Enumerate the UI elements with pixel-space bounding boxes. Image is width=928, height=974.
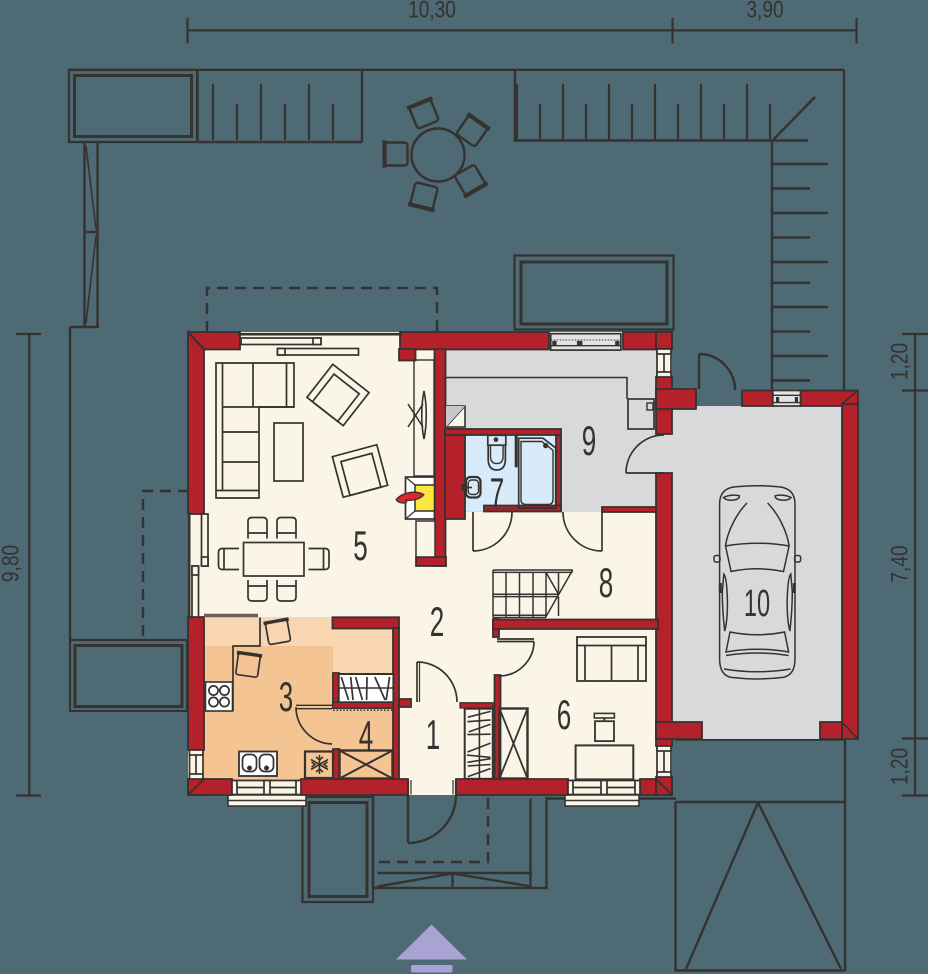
svg-text:2: 2 — [430, 599, 444, 646]
svg-text:5: 5 — [353, 523, 367, 570]
svg-text:4: 4 — [359, 713, 373, 760]
svg-text:8: 8 — [599, 560, 613, 607]
svg-text:7: 7 — [490, 470, 504, 517]
svg-text:9: 9 — [582, 418, 596, 465]
svg-text:1,20: 1,20 — [885, 748, 913, 785]
svg-text:10: 10 — [744, 581, 770, 624]
svg-text:1,20: 1,20 — [885, 343, 913, 380]
svg-text:9,80: 9,80 — [0, 545, 24, 582]
svg-text:10,30: 10,30 — [408, 0, 456, 23]
svg-text:3: 3 — [279, 674, 293, 721]
svg-text:7,40: 7,40 — [885, 545, 913, 582]
svg-text:6: 6 — [557, 692, 571, 739]
svg-text:1: 1 — [426, 712, 440, 759]
svg-text:3,90: 3,90 — [746, 0, 783, 23]
